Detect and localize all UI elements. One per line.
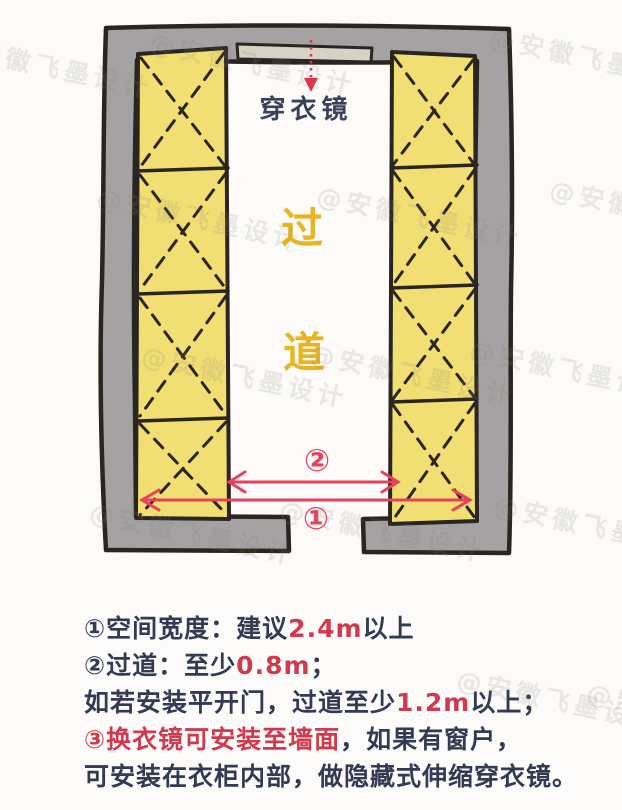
note-text: ； xyxy=(311,651,337,680)
note-line-aisle-min: ②过道：至少0.8m； xyxy=(84,647,614,684)
dim-aisle-label: ② xyxy=(304,443,330,479)
note-highlight-value: 2.4m xyxy=(288,614,362,643)
note-line-mirror-hidden: 可安装在衣柜内部，做隐藏式伸缩穿衣镜。 xyxy=(84,758,614,795)
note-text: 以上； xyxy=(470,688,548,717)
floor-plan-illustration: 穿衣镜 过 道 ② ① ①空间宽度：建议2.4m以上 ②过道：至少0.8m； 如… xyxy=(0,0,622,810)
note-text: 可安装在衣柜内部，做隐藏式伸缩穿衣镜。 xyxy=(84,762,578,791)
left-wardrobe xyxy=(136,48,229,519)
note-text: 如若安装平开门，过道至少 xyxy=(84,688,396,717)
note-text: ①空间宽度：建议 xyxy=(84,614,288,643)
note-text: 以上 xyxy=(363,614,415,643)
note-text: ②过道：至少 xyxy=(84,651,236,680)
note-text: ，如果有窗户， xyxy=(340,725,522,754)
mirror-label: 穿衣镜 xyxy=(259,94,352,125)
room-plan-drawing: 穿衣镜 过 道 ② ① xyxy=(0,0,622,600)
note-line-mirror-wall: ③换衣镜可安装至墙面，如果有窗户， xyxy=(84,721,614,758)
note-highlight-text: ③换衣镜可安装至墙面 xyxy=(84,725,340,754)
right-wardrobe xyxy=(390,52,477,524)
aisle-label-char-2: 道 xyxy=(283,328,325,377)
note-highlight-value: 1.2m xyxy=(396,688,470,717)
note-line-swing-door: 如若安装平开门，过道至少1.2m以上； xyxy=(84,684,614,721)
note-line-space-width: ①空间宽度：建议2.4m以上 xyxy=(84,610,614,647)
notes-block: ①空间宽度：建议2.4m以上 ②过道：至少0.8m； 如若安装平开门，过道至少1… xyxy=(84,610,614,795)
dim-total-width-label: ① xyxy=(303,501,329,537)
mirror xyxy=(237,44,372,62)
aisle-label-char-1: 过 xyxy=(281,204,323,253)
note-highlight-value: 0.8m xyxy=(236,651,310,680)
